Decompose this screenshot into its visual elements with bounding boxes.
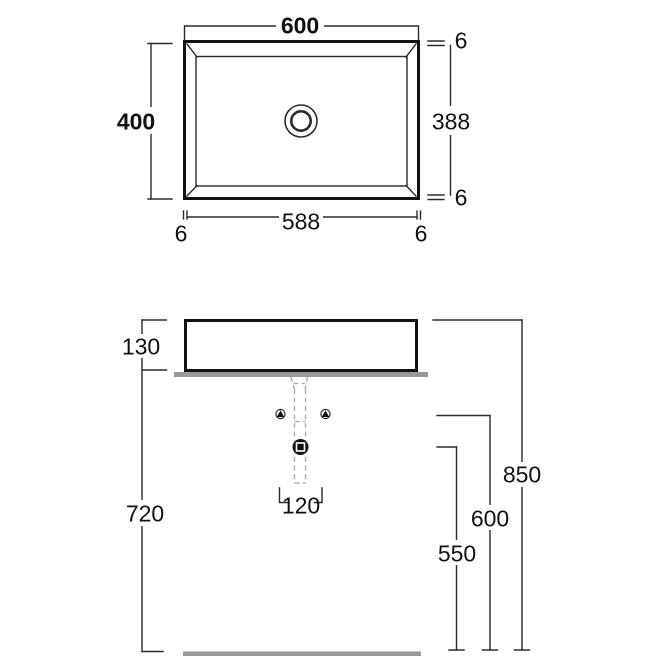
washbasin-technical-drawing: 600 400 6 388 6 588 6 6	[0, 0, 664, 664]
dim-label-rim-right-bottom: 6	[455, 184, 468, 210]
dim-label-rim-right-top: 6	[455, 27, 468, 53]
dim-label-600-width: 600	[281, 12, 319, 38]
dim-label-588-bowl-width: 588	[282, 208, 320, 234]
dim-label-130-basin-height: 130	[122, 333, 160, 359]
drain-pipe-dashed	[291, 377, 308, 483]
drain-valve-icon	[293, 439, 309, 455]
dim-label-850-total-height: 850	[503, 461, 541, 487]
dim-label-720-counter-height: 720	[126, 500, 164, 526]
dim-label-rim-bottom-right: 6	[415, 220, 428, 246]
dim-label-388-bowl-depth: 388	[432, 108, 470, 134]
fixing-screw-icon	[276, 409, 285, 418]
top-view	[185, 42, 419, 199]
countertop-bar	[174, 372, 428, 377]
dim-label-600-supply-height: 600	[471, 505, 509, 531]
dim-label-400-depth: 400	[117, 108, 155, 134]
basin-front-profile	[186, 321, 417, 371]
floor-bar	[183, 652, 421, 657]
drawing-svg: 600 400 6 388 6 588 6 6	[0, 0, 664, 664]
front-view	[174, 321, 428, 657]
dim-label-550-drain-height: 550	[438, 540, 476, 566]
dim-label-rim-bottom-left: 6	[175, 220, 188, 246]
dim-label-120-hole-spacing: 120	[282, 492, 320, 518]
fixing-screw-icon	[321, 409, 330, 418]
basin-outer-rim	[185, 42, 419, 199]
